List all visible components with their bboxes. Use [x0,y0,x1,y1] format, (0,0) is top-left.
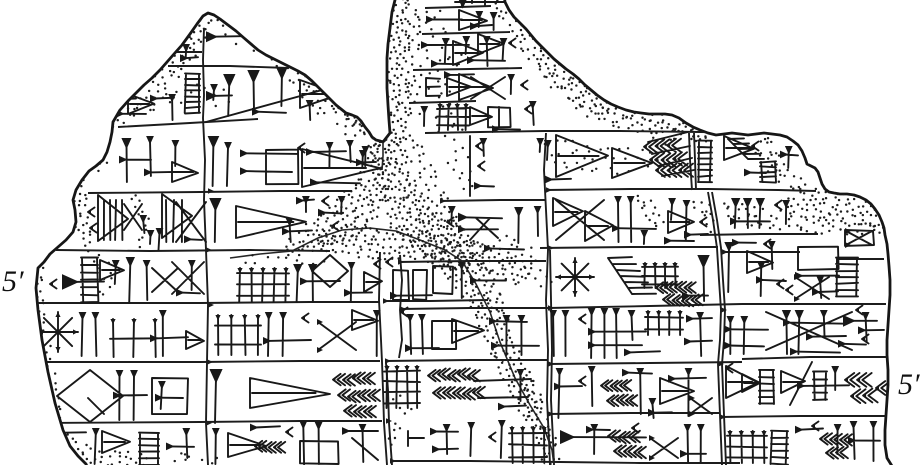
svg-text:5′: 5′ [898,368,920,401]
svg-text:5′: 5′ [2,265,24,298]
